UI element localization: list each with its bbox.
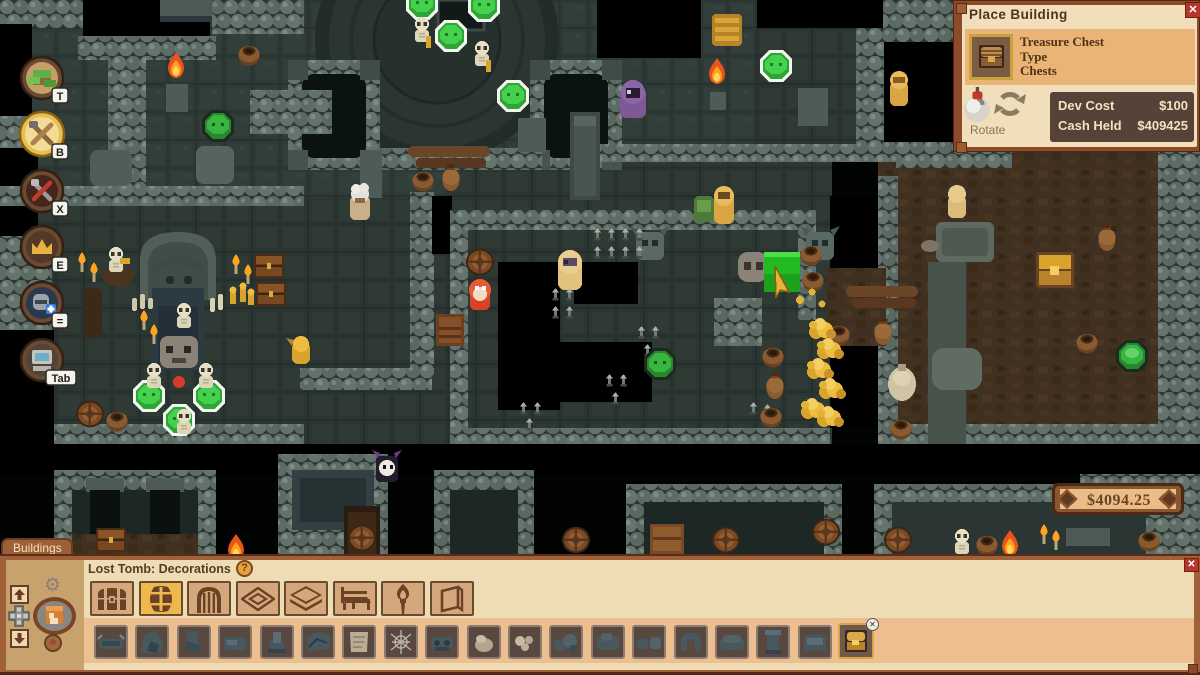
svg-text:X: X bbox=[56, 204, 64, 216]
svg-text:Tab: Tab bbox=[52, 373, 71, 385]
svg-text:B: B bbox=[56, 147, 64, 159]
svg-text:E: E bbox=[56, 260, 63, 272]
svg-text:=: = bbox=[57, 316, 63, 328]
svg-text:$4094.25: $4094.25 bbox=[1087, 492, 1151, 509]
svg-text:T: T bbox=[57, 91, 64, 103]
